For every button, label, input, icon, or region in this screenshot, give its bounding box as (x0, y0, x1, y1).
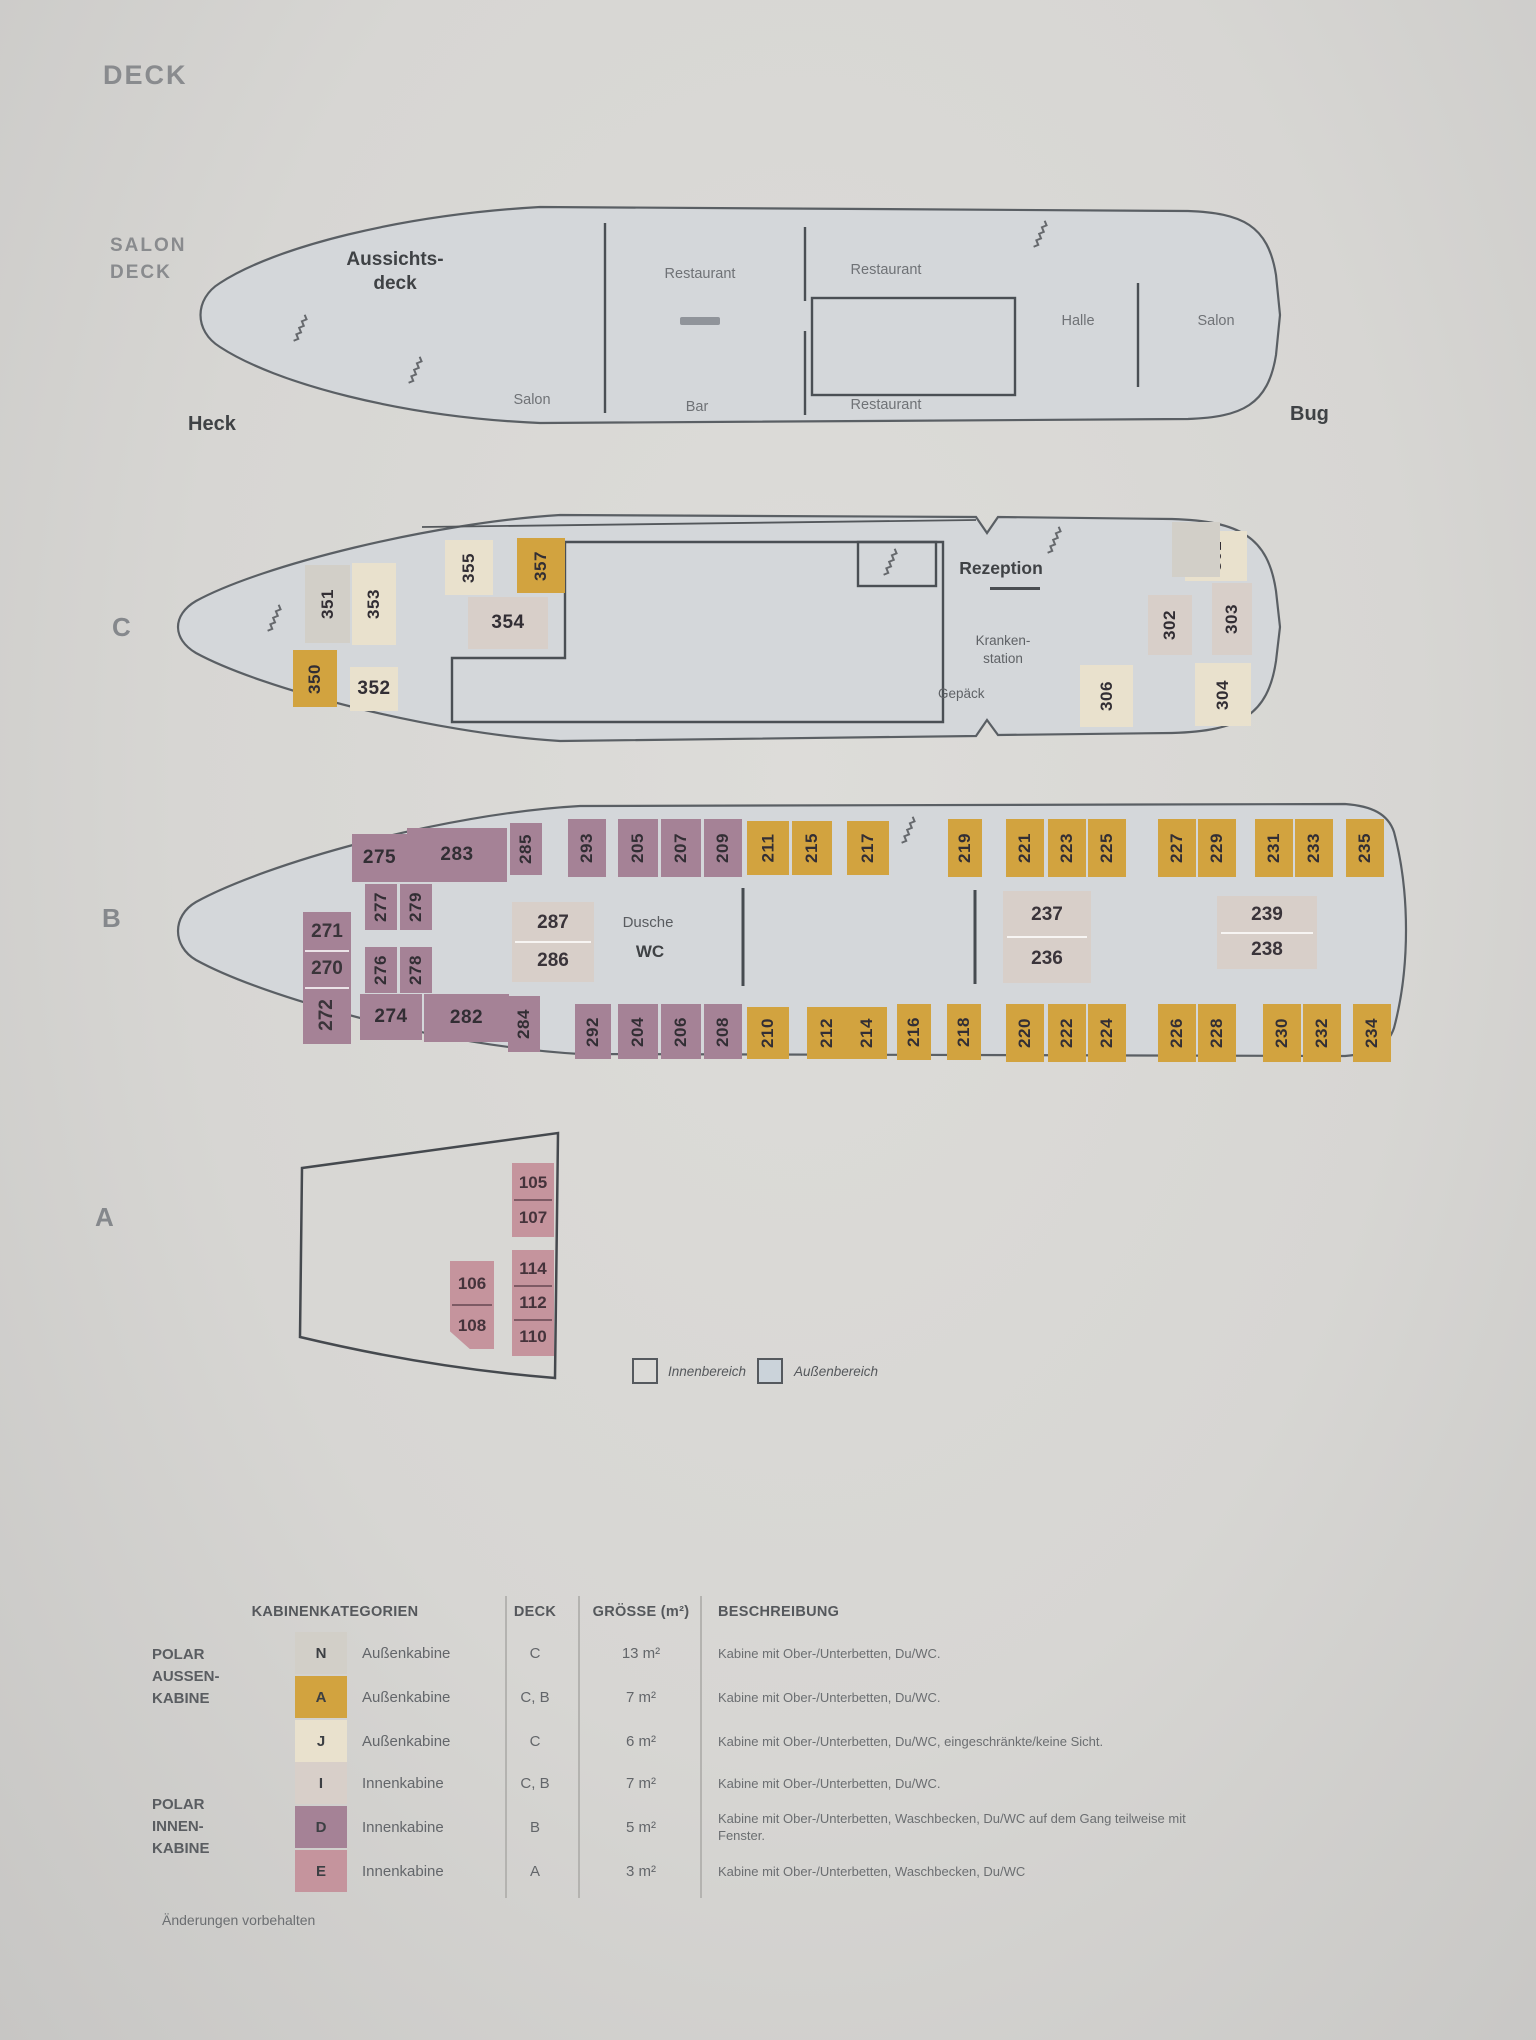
stairs-icon (288, 316, 314, 343)
cabin-number: 226 (1167, 1018, 1187, 1048)
cabin-number: 306 (1097, 681, 1117, 711)
cabin-number: 205 (628, 833, 648, 863)
cabin-277: 277 (365, 884, 397, 930)
cabin-number: 353 (364, 589, 384, 619)
rezeption-label: Rezeption (959, 558, 1043, 579)
category-size-E: 3 m² (581, 1850, 701, 1892)
cabin-224: 224 (1088, 1004, 1126, 1062)
cabin-216: 216 (897, 1004, 931, 1060)
stairs-icon (262, 606, 288, 633)
category-size-J: 6 m² (581, 1720, 701, 1762)
deck-c-letter: C (112, 612, 131, 643)
cabin-number: 228 (1207, 1018, 1227, 1048)
cabin-number: 279 (406, 892, 426, 922)
cabin-number: 210 (758, 1018, 778, 1048)
cabin-number: 286 (515, 941, 590, 979)
category-swatch-J: J (295, 1720, 347, 1762)
cabin-274: 274 (360, 994, 422, 1040)
cabin-292: 292 (575, 1004, 611, 1059)
cabin-206: 206 (661, 1004, 701, 1059)
cabin-number: 207 (671, 833, 691, 863)
category-size-N: 13 m² (581, 1632, 701, 1674)
group-label: POLARINNEN-KABINE (152, 1794, 287, 1860)
gepaeck-label: Gepäck (938, 686, 985, 701)
cabin-number: 204 (628, 1017, 648, 1047)
salon-deck-hull (180, 195, 1300, 435)
cabin-number: 238 (1221, 932, 1313, 967)
cabin-number: 235 (1355, 833, 1375, 863)
cabin-235: 235 (1346, 819, 1384, 877)
category-swatch-D: D (295, 1806, 347, 1848)
deck-c-cabins: 351353350352355357354301302303304306 (160, 495, 1310, 760)
cabin-number: 293 (577, 833, 597, 863)
cabin-230: 230 (1263, 1004, 1301, 1062)
cabin-355: 355 (445, 540, 493, 595)
cabin-227: 227 (1158, 819, 1196, 877)
cabin-number: 224 (1097, 1018, 1117, 1048)
cabin-212: 212 (807, 1007, 847, 1059)
cabin-number: 355 (459, 553, 479, 583)
deck-plan-page: DECK SALON DECK Aussichts- deck Salon Re… (0, 0, 1536, 2040)
cabin-number: 233 (1304, 833, 1324, 863)
cabin-number: 230 (1272, 1018, 1292, 1048)
cabin-302: 302 (1148, 595, 1192, 655)
cabin-276: 276 (365, 947, 397, 993)
bug-label: Bug (1290, 403, 1329, 426)
category-type-N: Außenkabine (362, 1632, 512, 1674)
table-rule (578, 1596, 580, 1898)
cabin-219: 219 (948, 819, 982, 877)
aussichtsdeck-label: Aussichts- deck (346, 248, 443, 296)
category-type-D: Innenkabine (362, 1806, 512, 1848)
cabin-number: 237 (1007, 894, 1088, 936)
cabin-208: 208 (704, 1004, 742, 1059)
cabin-number: 236 (1007, 936, 1088, 980)
cabin-category-table: KABINENKATEGORIEN DECK GRÖSSE (m²) BESCH… (150, 1596, 1340, 1936)
cabin-number: 271 (305, 915, 349, 950)
cabin-number: 211 (758, 834, 778, 863)
cabin-306: 306 (1080, 665, 1133, 727)
cabin-number: 106 (452, 1264, 492, 1304)
deck-b-cabins: 2752832852932052072092112152172192212232… (160, 790, 1420, 1070)
cabin-237-236: 237236 (1003, 891, 1091, 983)
restaurant-fwd-bottom-label: Restaurant (851, 397, 922, 413)
category-type-J: Außenkabine (362, 1720, 512, 1762)
cabin-221: 221 (1006, 819, 1044, 877)
cabin-351: 351 (305, 565, 350, 643)
category-type-A: Außenkabine (362, 1676, 512, 1718)
cabin-225: 225 (1088, 819, 1126, 877)
cabin-number: 357 (531, 551, 551, 581)
cabin-number: 239 (1221, 899, 1313, 932)
cabin-number: 206 (671, 1017, 691, 1047)
cabin-number: 275 (363, 847, 396, 869)
cabin-282: 282 (424, 994, 509, 1042)
cabin-232: 232 (1303, 1004, 1341, 1062)
cabin-number: 107 (514, 1199, 553, 1234)
category-description-I: Kabine mit Ober-/Unterbetten, Du/WC. (718, 1762, 1198, 1804)
category-description-E: Kabine mit Ober-/Unterbetten, Waschbecke… (718, 1850, 1198, 1892)
category-size-D: 5 m² (581, 1806, 701, 1848)
cabin-number: 219 (955, 833, 975, 863)
cabin-number: 278 (406, 955, 426, 985)
header-beschreibung: BESCHREIBUNG (718, 1604, 839, 1620)
cabin-number: 350 (305, 664, 325, 694)
halle-label: Halle (1061, 313, 1094, 329)
cabin-303: 303 (1212, 583, 1252, 655)
cabin-233: 233 (1295, 819, 1333, 877)
cabin-231: 231 (1255, 819, 1293, 877)
cabin-350: 350 (293, 650, 337, 707)
cabin-353: 353 (352, 563, 396, 645)
category-deck-I: C, B (495, 1762, 575, 1804)
cabin-275: 275 (352, 834, 407, 882)
cabin-229: 229 (1198, 819, 1236, 877)
cabin-215: 215 (792, 821, 832, 875)
category-description-N: Kabine mit Ober-/Unterbetten, Du/WC. (718, 1632, 1198, 1674)
restaurant-mid-top-label: Restaurant (665, 266, 736, 282)
restaurant-fwd-top-label: Restaurant (851, 262, 922, 278)
cabin-211: 211 (747, 821, 789, 875)
aussenbereich-swatch (757, 1358, 783, 1384)
cabin-222: 222 (1048, 1004, 1086, 1062)
stairs-icon (1028, 222, 1054, 249)
cabin-114-112-110: 114112110 (512, 1250, 554, 1356)
wc-label: WC (636, 942, 664, 962)
group-label: POLARAUSSEN-KABINE (152, 1644, 287, 1710)
deck-b-letter: B (102, 903, 121, 934)
cabin-205: 205 (618, 819, 658, 877)
category-description-D: Kabine mit Ober-/Unterbetten, Waschbecke… (718, 1806, 1198, 1848)
cabin-226: 226 (1158, 1004, 1196, 1062)
cabin-234: 234 (1353, 1004, 1391, 1062)
header-groesse: GRÖSSE (m²) (581, 1604, 701, 1620)
cabin-106-108: 106108 (450, 1261, 494, 1349)
cabin-number: 221 (1015, 833, 1035, 863)
cabin-number: 114 (514, 1253, 553, 1285)
stairs-icon (896, 818, 922, 845)
cabin-214: 214 (847, 1007, 887, 1059)
cabin-number: 276 (371, 955, 391, 985)
krankenstation-label: Kranken- station (976, 632, 1031, 668)
footer-note: Änderungen vorbehalten (162, 1912, 315, 1928)
cabin-number: 223 (1057, 833, 1077, 863)
cabin-354: 354 (468, 597, 548, 649)
cabin-223: 223 (1048, 819, 1086, 877)
cabin-number: 216 (904, 1017, 924, 1047)
salon-deck-label: SALON DECK (110, 232, 187, 286)
cabin-218: 218 (947, 1004, 981, 1060)
unlabeled-block (1172, 522, 1220, 577)
category-deck-N: C (495, 1632, 575, 1674)
cabin-304: 304 (1195, 663, 1251, 726)
cabin-352: 352 (350, 667, 398, 711)
cabin-287-286: 287286 (512, 902, 594, 982)
cabin-number: 225 (1097, 833, 1117, 863)
category-type-I: Innenkabine (362, 1762, 512, 1804)
category-swatch-E: E (295, 1850, 347, 1892)
cabin-number: 112 (514, 1285, 553, 1319)
cabin-number: 229 (1207, 833, 1227, 863)
cabin-number: 285 (516, 834, 536, 864)
cabin-number: 292 (583, 1017, 603, 1047)
category-type-E: Innenkabine (362, 1850, 512, 1892)
cabin-number: 209 (713, 833, 733, 863)
cabin-number: 351 (318, 589, 338, 619)
cabin-228: 228 (1198, 1004, 1236, 1062)
header-deck: DECK (495, 1604, 575, 1620)
cabin-number: 272 (305, 987, 349, 1041)
cabin-number: 218 (954, 1017, 974, 1047)
table-symbol (680, 317, 720, 325)
cabin-number: 231 (1264, 833, 1284, 863)
category-size-I: 7 m² (581, 1762, 701, 1804)
heck-label: Heck (188, 413, 236, 436)
deck-a-cabins: 105107106108114112110 (290, 1125, 580, 1395)
cabin-number: 208 (713, 1017, 733, 1047)
cabin-220: 220 (1006, 1004, 1044, 1062)
cabin-number: 222 (1057, 1018, 1077, 1048)
dusche-label: Dusche (623, 914, 674, 931)
cabin-number: 214 (857, 1018, 877, 1048)
deck-a-letter: A (95, 1202, 114, 1233)
cabin-number: 282 (450, 1007, 483, 1029)
category-swatch-N: N (295, 1632, 347, 1674)
cabin-number: 303 (1222, 604, 1242, 634)
category-deck-E: A (495, 1850, 575, 1892)
innenbereich-swatch (632, 1358, 658, 1384)
cabin-239-238: 239238 (1217, 896, 1317, 969)
cabin-number: 108 (452, 1304, 492, 1346)
cabin-number: 270 (305, 950, 349, 987)
cabin-number: 110 (514, 1319, 553, 1353)
cabin-number: 212 (817, 1018, 837, 1048)
category-deck-J: C (495, 1720, 575, 1762)
category-swatch-I: I (295, 1762, 347, 1804)
cabin-number: 105 (514, 1166, 553, 1199)
salon-fwd-label: Salon (1197, 313, 1234, 329)
cabin-number: 354 (491, 612, 524, 634)
cabin-number: 352 (357, 678, 390, 700)
cabin-number: 220 (1015, 1018, 1035, 1048)
cabin-number: 217 (858, 833, 878, 863)
cabin-207: 207 (661, 819, 701, 877)
category-description-J: Kabine mit Ober-/Unterbetten, Du/WC, ein… (718, 1720, 1198, 1762)
category-description-A: Kabine mit Ober-/Unterbetten, Du/WC. (718, 1676, 1198, 1718)
cabin-271-270-272: 271270272 (303, 912, 351, 1044)
cabin-210: 210 (747, 1007, 789, 1059)
cabin-number: 232 (1312, 1018, 1332, 1048)
salon-aft-label: Salon (513, 392, 550, 408)
cabin-285: 285 (510, 823, 542, 875)
cabin-105-107: 105107 (512, 1163, 554, 1237)
rezeption-underline (990, 587, 1040, 590)
cabin-number: 234 (1362, 1018, 1382, 1048)
innenbereich-label: Innenbereich (668, 1364, 746, 1379)
page-title: DECK (103, 60, 188, 91)
cabin-number: 287 (515, 905, 590, 941)
header-kabinenkategorien: KABINENKATEGORIEN (185, 1604, 485, 1620)
category-size-A: 7 m² (581, 1676, 701, 1718)
cabin-284: 284 (508, 996, 540, 1052)
cabin-279: 279 (400, 884, 432, 930)
cabin-number: 227 (1167, 833, 1187, 863)
cabin-209: 209 (704, 819, 742, 877)
cabin-278: 278 (400, 947, 432, 993)
bar-label: Bar (686, 399, 709, 415)
aussenbereich-label: Außenbereich (794, 1364, 878, 1379)
cabin-number: 283 (440, 844, 473, 866)
cabin-204: 204 (618, 1004, 658, 1059)
cabin-number: 284 (514, 1009, 534, 1039)
category-deck-A: C, B (495, 1676, 575, 1718)
cabin-217: 217 (847, 821, 889, 875)
stairs-icon (1042, 528, 1068, 555)
cabin-number: 302 (1160, 610, 1180, 640)
cabin-357: 357 (517, 538, 565, 593)
cabin-293: 293 (568, 819, 606, 877)
cabin-number: 304 (1213, 680, 1233, 710)
stairs-icon (403, 358, 429, 385)
cabin-number: 277 (371, 892, 391, 922)
category-deck-D: B (495, 1806, 575, 1848)
category-swatch-A: A (295, 1676, 347, 1718)
stairs-icon (878, 550, 904, 577)
cabin-283: 283 (407, 828, 507, 882)
cabin-number: 215 (802, 833, 822, 863)
cabin-number: 274 (374, 1006, 407, 1028)
